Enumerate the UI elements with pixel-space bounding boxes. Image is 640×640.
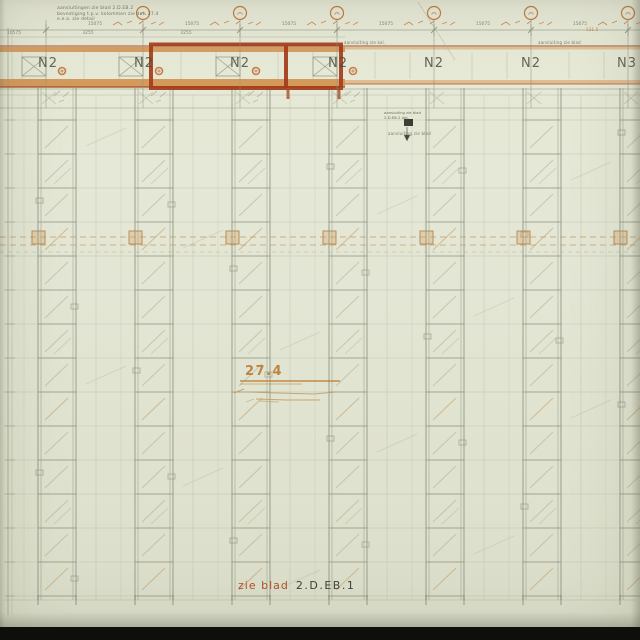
- glazing-slash: [433, 500, 456, 522]
- sheet-reference-number: 2.D.EB.1: [296, 579, 355, 592]
- glazing-slash: [142, 466, 165, 488]
- glazing-slash: [530, 364, 553, 386]
- glazing-slash: [530, 160, 553, 182]
- vent-rect: [459, 168, 466, 173]
- glazing-slash: [45, 296, 68, 318]
- glazing-slash: [530, 398, 553, 420]
- vent-rect: [36, 198, 43, 203]
- hand-mark: [248, 91, 263, 102]
- glazing-slash: [239, 432, 262, 454]
- glazing-slash: [239, 534, 262, 556]
- glazing-slash: [239, 398, 262, 420]
- tiny-annotation: aansluiting zie blad: [388, 131, 431, 136]
- vent-rect: [556, 338, 563, 343]
- glazing-slash: [239, 296, 262, 318]
- grid-bubble: [525, 7, 538, 20]
- glazing-slash: [336, 466, 359, 488]
- glazing-slash: [45, 194, 68, 216]
- band-square: [323, 231, 336, 244]
- scan-scratch: [418, 2, 455, 60]
- vent-rect: [521, 504, 528, 509]
- vent-rect: [327, 436, 334, 441]
- glazing-slash: [142, 364, 165, 386]
- glazing-slash: [142, 262, 165, 284]
- band-square: [32, 231, 45, 244]
- anchor-donut: [350, 68, 357, 75]
- vent-rect: [362, 270, 369, 275]
- glazing-slash: [239, 466, 262, 488]
- curtain-wall-elevation-drawing: [0, 0, 640, 640]
- glazing-slash: [142, 228, 165, 250]
- dimension-value: 10575: [7, 31, 21, 36]
- dimension-value: 15075: [476, 22, 490, 27]
- panel-type-label: N2: [230, 56, 250, 71]
- glazing-slash: [433, 568, 456, 590]
- dimension-value: 3255: [180, 31, 191, 36]
- wall-slash: [86, 366, 126, 384]
- anchor-donut-center: [255, 70, 257, 72]
- wall-slash: [86, 128, 126, 146]
- hand-mark-orange: [307, 21, 337, 25]
- panel-type-label: N2: [328, 56, 348, 71]
- glazing-slash: [142, 432, 165, 454]
- glazing-slash: [45, 534, 68, 556]
- glazing-slash: [142, 160, 165, 182]
- glazing-slash: [336, 534, 359, 556]
- wall-slash: [183, 468, 223, 486]
- band-square: [420, 231, 433, 244]
- glazing-slash: [239, 160, 262, 182]
- scan-bottom-shadow: [0, 612, 640, 627]
- glazing-slash: [45, 364, 68, 386]
- anchor-donut-center: [61, 70, 63, 72]
- glazing-slash: [433, 194, 456, 216]
- vent-rect: [327, 164, 334, 169]
- vent-rect: [618, 402, 625, 407]
- vent-rect: [230, 266, 237, 271]
- grid-bubble: [428, 7, 441, 20]
- wall-slash: [280, 332, 320, 350]
- tiny-annotation: aansluiting zie blad: [538, 40, 581, 45]
- glazing-slash: [433, 228, 456, 250]
- glazing-slash: [530, 126, 553, 148]
- glazing-slash: [530, 296, 553, 318]
- vent-rect: [133, 368, 140, 373]
- scan-edge-left: [0, 0, 5, 640]
- glazing-slash: [142, 194, 165, 216]
- glazing-slash: [142, 568, 165, 590]
- glazing-slash: [142, 296, 165, 318]
- glazing-slash: [530, 194, 553, 216]
- scan-edge-right: [631, 0, 640, 640]
- hand-mark-orange: [345, 22, 358, 25]
- wall-slash: [571, 400, 611, 418]
- glazing-slash: [142, 126, 165, 148]
- orange-stripe-upper: [0, 47, 345, 52]
- vent-rect: [168, 202, 175, 207]
- glazing-slash: [142, 330, 165, 352]
- anchor-donut: [156, 68, 163, 75]
- glazing-slash: [239, 262, 262, 284]
- handwritten-note: [234, 389, 336, 400]
- wall-slash: [474, 298, 514, 316]
- glazing-slash: [239, 330, 262, 352]
- hand-mark-orange: [248, 22, 261, 25]
- glazing-slash: [336, 330, 359, 352]
- glazing-slash: [530, 500, 553, 522]
- band-square: [517, 231, 530, 244]
- vent-rect: [230, 538, 237, 543]
- vent-rect: [71, 576, 78, 581]
- hand-mark: [151, 91, 166, 102]
- hand-mark: [54, 91, 69, 102]
- glazing-slash: [239, 228, 262, 250]
- hand-mark-orange: [442, 22, 455, 25]
- glazing-slash: [45, 432, 68, 454]
- hand-mark-orange: [501, 21, 531, 25]
- panel-type-label: N2: [134, 56, 154, 71]
- glazing-slash: [336, 126, 359, 148]
- glazing-slash: [45, 568, 68, 590]
- panel-type-label: N2: [424, 56, 444, 71]
- glazing-slash: [142, 500, 165, 522]
- hand-mark-orange: [404, 21, 434, 25]
- glazing-slash: [336, 432, 359, 454]
- glazing-slash: [433, 296, 456, 318]
- vent-rect: [36, 470, 43, 475]
- glazing-slash: [433, 126, 456, 148]
- glazing-slash: [530, 534, 553, 556]
- grid-bubble-number: [432, 13, 437, 15]
- anchor-donut: [253, 68, 260, 75]
- glazing-slash: [45, 160, 68, 182]
- tiny-annotation: aansluiting zie kol.: [344, 40, 385, 45]
- sheet-reference-prefix: zie blad: [238, 579, 289, 592]
- anchor-donut-center: [352, 70, 354, 72]
- dimension-value: 15075: [573, 22, 587, 27]
- orange-stripe-lower: [0, 79, 345, 87]
- hand-mark-orange: [598, 21, 628, 25]
- mid-annotation-block: aansluiting zie blad 2.D.EB.2 det.: [384, 111, 421, 121]
- glazing-slash: [336, 262, 359, 284]
- glazing-slash: [45, 398, 68, 420]
- band-square: [226, 231, 239, 244]
- glazing-slash: [45, 500, 68, 522]
- glazing-slash: [336, 228, 359, 250]
- hand-mark: [345, 91, 360, 102]
- anchor-donut-center: [158, 70, 160, 72]
- band-square: [614, 231, 627, 244]
- glazing-slash: [530, 330, 553, 352]
- glazing-slash: [433, 262, 456, 284]
- vent-rect: [424, 334, 431, 339]
- glazing-slash: [336, 364, 359, 386]
- glazing-slash: [45, 228, 68, 250]
- grid-bubble-number: [529, 13, 534, 15]
- glazing-slash: [433, 534, 456, 556]
- dimension-value: 15075: [88, 22, 102, 27]
- glazing-slash: [45, 126, 68, 148]
- vent-rect: [362, 542, 369, 547]
- glazing-slash: [530, 466, 553, 488]
- hand-mark-orange: [210, 21, 240, 25]
- scan-black-strip: [0, 627, 640, 640]
- dimension-value: 15075: [282, 22, 296, 27]
- wall-slash: [377, 434, 417, 452]
- vent-rect: [459, 440, 466, 445]
- vent-rect: [618, 130, 625, 135]
- wall-slash: [571, 162, 611, 180]
- top-annotation-line: e.e.a. zie detail: [57, 17, 159, 23]
- glazing-slash: [530, 228, 553, 250]
- orange-stripe-upper: [345, 47, 640, 50]
- mid-annotation-line: 2.D.EB.2 det.: [384, 116, 421, 121]
- glazing-slash: [433, 432, 456, 454]
- grid-bubble-number: [238, 13, 243, 15]
- glazing-slash: [239, 126, 262, 148]
- grid-bubble-number: [626, 13, 631, 15]
- wall-slash: [377, 196, 417, 214]
- sheet-reference: zie blad2.D.EB.1: [238, 579, 355, 592]
- grid-bubble: [331, 7, 344, 20]
- band-square: [129, 231, 142, 244]
- dimension-value: 3255: [82, 31, 93, 36]
- grid-bubble: [234, 7, 247, 20]
- wall-slash: [474, 536, 514, 554]
- glazing-slash: [530, 262, 553, 284]
- detail-mark: 27.4: [245, 364, 283, 379]
- vent-rect: [168, 474, 175, 479]
- dimension-value: 15075: [379, 22, 393, 27]
- scanned-drawing-sheet: aansluitingen zie blad 2.D.EB.2 bevestig…: [0, 0, 640, 640]
- glazing-slash: [336, 398, 359, 420]
- glazing-slash: [142, 398, 165, 420]
- glazing-slash: [530, 432, 553, 454]
- glazing-slash: [239, 194, 262, 216]
- orange-stripe-lower: [345, 80, 640, 84]
- glazing-slash: [336, 296, 359, 318]
- glazing-slash: [239, 500, 262, 522]
- glazing-slash: [433, 330, 456, 352]
- anchor-donut: [59, 68, 66, 75]
- panel-type-label: N2: [38, 56, 58, 71]
- glazing-slash: [142, 534, 165, 556]
- dimension-value: 15075: [185, 22, 199, 27]
- glazing-slash: [45, 466, 68, 488]
- glazing-slash: [45, 330, 68, 352]
- top-annotation-block: aansluitingen zie blad 2.D.EB.2 bevestig…: [57, 6, 159, 23]
- vent-rect: [71, 304, 78, 309]
- glazing-slash: [433, 466, 456, 488]
- glazing-slash: [433, 160, 456, 182]
- glazing-slash: [433, 398, 456, 420]
- hand-mark-orange: [539, 22, 552, 25]
- glazing-slash: [45, 262, 68, 284]
- grid-bubble-number: [335, 13, 340, 15]
- glazing-slash: [336, 160, 359, 182]
- glazing-slash: [433, 364, 456, 386]
- glazing-slash: [336, 500, 359, 522]
- glazing-slash: [336, 194, 359, 216]
- tiny-annotation: 131.5: [586, 27, 598, 32]
- glazing-slash: [530, 568, 553, 590]
- panel-type-label: N2: [521, 56, 541, 71]
